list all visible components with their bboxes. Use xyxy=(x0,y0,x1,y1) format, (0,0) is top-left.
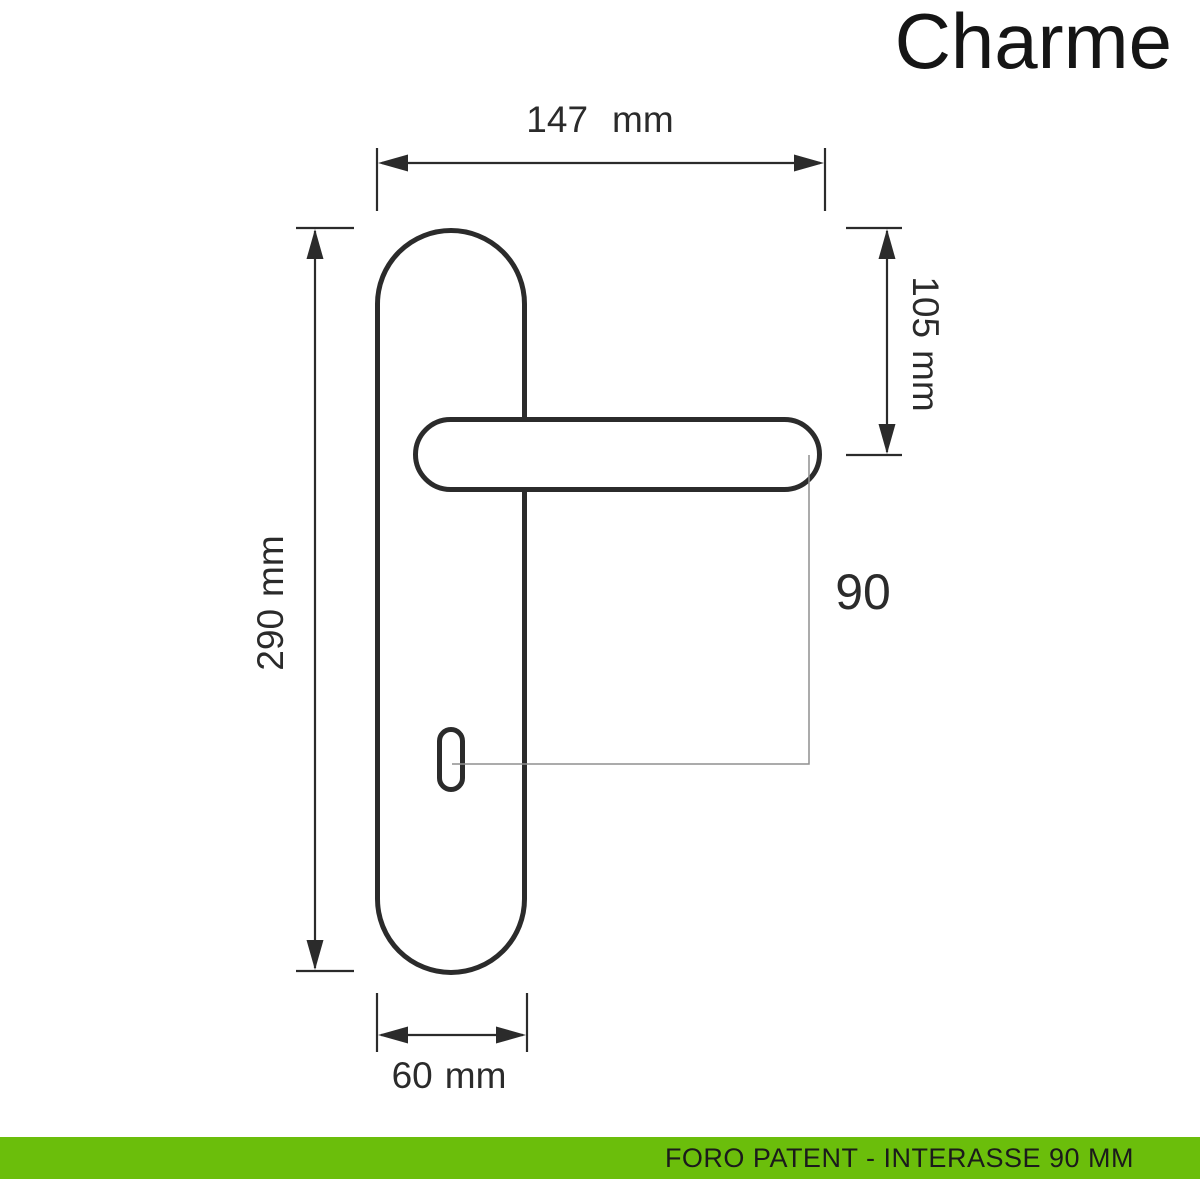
dim-105-lines xyxy=(846,228,902,455)
page: Charme xyxy=(0,0,1200,1200)
dim-overall-width-value: 147 xyxy=(526,99,588,140)
dim-147-lines xyxy=(377,148,825,211)
dim-handle-to-top-label: 105mm xyxy=(904,276,946,411)
dim-interaxis-label: 90 xyxy=(835,563,891,621)
dim-plate-height-label: 290mm xyxy=(250,535,292,670)
dim-plate-width-label: 60mm xyxy=(392,1055,507,1097)
dim-plate-width-unit: mm xyxy=(445,1055,507,1096)
dim-overall-width-label: 147mm xyxy=(526,99,673,141)
dim-handle-to-top-value: 105 xyxy=(905,276,946,338)
dim-interaxis-value: 90 xyxy=(835,564,891,620)
dim-handle-to-top-unit: mm xyxy=(905,350,946,412)
dim-plate-height-unit: mm xyxy=(250,535,291,597)
handle-shape xyxy=(416,420,820,490)
keyhole xyxy=(440,730,463,790)
footer-text: FORO PATENT - INTERASSE 90 MM xyxy=(665,1143,1134,1174)
handle-outline xyxy=(416,420,820,490)
technical-drawing xyxy=(0,0,1200,1200)
keyhole-shape xyxy=(440,730,463,790)
dim-plate-width-value: 60 xyxy=(392,1055,433,1096)
dim-60-lines xyxy=(377,993,527,1052)
dim-plate-height-value: 290 xyxy=(250,609,291,671)
footer-bar: FORO PATENT - INTERASSE 90 MM xyxy=(0,1137,1200,1179)
plate-shape xyxy=(378,231,525,973)
dim-290-lines xyxy=(296,228,354,971)
plate-outline xyxy=(378,231,525,973)
dim-overall-width-unit: mm xyxy=(612,99,674,140)
